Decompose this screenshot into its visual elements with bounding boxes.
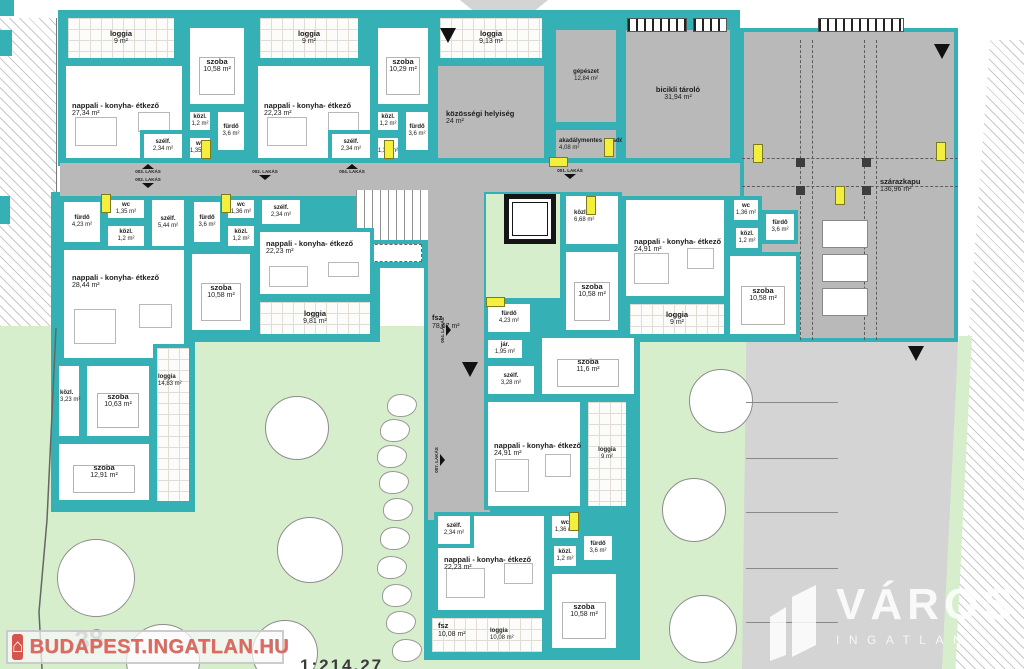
room-area: 10,58 m² xyxy=(570,611,598,619)
apartment-label: 003. LAKÁS xyxy=(126,169,170,175)
down-arrow-icon xyxy=(462,362,478,377)
watermark-text: BUDAPEST.INGATLAN.HU xyxy=(29,636,289,659)
floor-plan-canvas: loggia9 m²nappali - konyha- étkező27,34 … xyxy=(0,0,1024,669)
room-gepeszet: gépészet12,84 m² xyxy=(552,26,620,126)
down-arrow-icon xyxy=(908,346,924,361)
tree xyxy=(662,478,726,542)
room-name: közösségi helyiség xyxy=(446,110,514,118)
room-kozl: közl.1,2 m² xyxy=(550,542,580,570)
room-kozl: közl.1,2 m² xyxy=(186,108,214,134)
label-name: fsz xyxy=(438,622,466,631)
room-area: 1,36 m² xyxy=(231,209,251,216)
room-area: 12,84 m² xyxy=(573,76,599,83)
door-marker xyxy=(569,512,579,531)
room-area: 2,34 m² xyxy=(271,212,291,219)
tree xyxy=(57,539,135,617)
room-name: szoba xyxy=(570,603,598,611)
watermark-varos-ingatlan: VÁROS INGATLAN xyxy=(770,583,1017,661)
door-marker xyxy=(835,186,845,205)
label-area: 78,67 m² xyxy=(432,323,460,331)
room-area: 9 m² xyxy=(598,454,616,461)
room-name: közl. xyxy=(60,390,80,397)
door-marker xyxy=(549,157,568,167)
room-szelf: szélf.3,28 m² xyxy=(484,362,538,398)
room-furdo: fürdő4,23 m² xyxy=(60,198,104,246)
room-area: 9 m² xyxy=(298,38,320,46)
room-jar: jár.1,95 m² xyxy=(484,336,526,362)
room-loggia: loggia9 m² xyxy=(64,14,178,62)
door-marker xyxy=(936,142,946,161)
room-name: szélf. xyxy=(444,523,464,530)
room-name: szoba xyxy=(578,283,606,291)
down-arrow-icon xyxy=(142,183,154,188)
room-szelf: szélf.5,44 m² xyxy=(148,196,188,250)
room-name: szélf. xyxy=(501,373,521,380)
room-kozl: közl.1,2 m² xyxy=(224,222,258,250)
room-szoba: szoba10,58 m² xyxy=(188,250,254,334)
room-area: 1,2 m² xyxy=(232,236,249,243)
parking-divider-line xyxy=(746,512,838,513)
parking-stall xyxy=(822,254,868,282)
room-area: 10,58 m² xyxy=(207,292,235,300)
room-area: 24,91 m² xyxy=(494,450,581,458)
down-arrow-icon xyxy=(440,454,445,466)
column-marker xyxy=(862,158,871,167)
room-name: szoba xyxy=(207,284,235,292)
room-area: 10,58 m² xyxy=(203,66,231,74)
room-area: 4,23 m² xyxy=(72,222,92,229)
room-szoba: szoba10,58 m² xyxy=(726,252,800,338)
room-area: 1,35 m² xyxy=(116,209,136,216)
room-area: 9,81 m² xyxy=(303,318,327,326)
floor-area-label: fsz10,08 m² xyxy=(438,622,466,639)
room-bicikli-tarolo: bicikli tároló31,94 m² xyxy=(622,26,734,162)
wall-fragment xyxy=(0,0,14,16)
room-szoba: szoba10,58 m² xyxy=(562,248,622,334)
room-name: loggia xyxy=(490,628,514,635)
door-marker xyxy=(384,140,394,159)
label-area: 10,08 m² xyxy=(438,631,466,639)
room-area: 2,34 m² xyxy=(153,146,173,153)
room-area: 9 m² xyxy=(666,319,688,327)
room-area: 24,91 m² xyxy=(634,246,721,254)
room-furdo: fürdő3,6 m² xyxy=(190,198,224,246)
room-area: 22,23 m² xyxy=(444,564,531,572)
room-furdo: fürdő3,6 m² xyxy=(214,108,248,154)
room-szoba: szoba10,29 m² xyxy=(374,24,432,108)
room-area: 10,58 m² xyxy=(749,295,777,303)
room-name: szoba xyxy=(389,58,417,66)
room-szelf: szélf.2,34 m² xyxy=(258,196,304,228)
room-area: 1,2 m² xyxy=(117,236,134,243)
parking-stall xyxy=(822,220,868,248)
room-area: 3,6 m² xyxy=(222,131,239,138)
room-loggia: loggia9 m² xyxy=(256,14,362,62)
room-area: 2,34 m² xyxy=(341,146,361,153)
room-name: szoba xyxy=(749,287,777,295)
room-name: gépészet xyxy=(573,69,599,76)
room-area: 27,34 m² xyxy=(72,110,159,118)
room-name: közl. xyxy=(379,114,396,121)
room-name: nappali - konyha- étkező xyxy=(634,238,721,246)
room-name: wc xyxy=(231,202,251,209)
down-arrow-icon xyxy=(259,175,271,180)
room-name: szélf. xyxy=(271,205,291,212)
room-area: 136,96 m² xyxy=(880,186,920,194)
tree xyxy=(669,595,737,663)
door-marker xyxy=(486,297,505,307)
watermark-subtitle: INGATLAN xyxy=(836,633,1017,647)
room-loggia: loggia14,83 m² xyxy=(153,344,193,505)
apartment-entrance-marker: 001. LAKÁS xyxy=(548,168,592,179)
elevator-shaft xyxy=(504,194,556,244)
room-area: 1,2 m² xyxy=(379,121,396,128)
room-area: 22,23 m² xyxy=(264,110,351,118)
room-szoba: szoba12,91 m² xyxy=(55,440,153,504)
room-furdo: fürdő3,6 m² xyxy=(580,532,616,564)
watermark-budapest-ingatlan: ⌂ BUDAPEST.INGATLAN.HU xyxy=(6,630,284,664)
room-area: 1,2 m² xyxy=(191,121,208,128)
room-area: 3,23 m² xyxy=(60,397,80,404)
room-kozossegi-helyiseg: közösségi helyiség24 m² xyxy=(434,62,548,162)
room-area: 3,6 m² xyxy=(408,131,425,138)
driveway-dashed-line xyxy=(812,40,813,340)
room-area: 3,6 m² xyxy=(589,548,606,555)
room-szoba: szoba11,6 m² xyxy=(538,334,638,398)
room-name: loggia xyxy=(598,447,616,454)
wall-fragment xyxy=(0,196,10,224)
door-marker xyxy=(753,144,763,163)
room-name: loggia xyxy=(110,30,132,38)
varos-logo-icon xyxy=(770,583,822,661)
scale-text-fragment: 1:214.27 xyxy=(300,656,383,669)
parking-stall xyxy=(822,288,868,316)
apartment-entrance-marker: 002. LAKÁS xyxy=(126,177,170,188)
room-szoba: szoba10,58 m² xyxy=(186,24,248,108)
apartment-entrance-marker: 004. LAKÁS xyxy=(330,164,374,175)
room-area: 1,95 m² xyxy=(495,349,515,356)
room-area: 3,6 m² xyxy=(198,222,215,229)
room-kozl: közl.1,2 m² xyxy=(374,108,402,134)
apartment-entrance-marker: 002. LAKÁS xyxy=(243,169,287,180)
room-name: nappali - konyha- étkező xyxy=(72,274,159,282)
down-arrow-icon xyxy=(564,174,576,179)
room-name: loggia xyxy=(298,30,320,38)
apartment-entrance-marker: 003. LAKÁS xyxy=(126,164,170,175)
room-name: közl. xyxy=(117,229,134,236)
room-name: bicikli tároló xyxy=(656,86,700,94)
label-name: fsz xyxy=(432,314,460,323)
room-name: nappali - konyha- étkező xyxy=(444,556,531,564)
room-name: nappali - konyha- étkező xyxy=(266,240,353,248)
adjacent-building-hatch-left xyxy=(0,18,57,326)
room-kozl: közl.1,2 m² xyxy=(732,224,762,252)
room-nappali-konyha-etkezo: nappali - konyha- étkező24,91 m² xyxy=(622,196,728,300)
room-area: 5,44 m² xyxy=(158,223,178,230)
room-area: 14,83 m² xyxy=(158,381,182,388)
room-name: fürdő xyxy=(589,541,606,548)
room-name: nappali - konyha- étkező xyxy=(72,102,159,110)
room-area: 10,08 m² xyxy=(490,635,514,642)
column-marker xyxy=(796,158,805,167)
column-marker xyxy=(796,186,805,195)
door-marker xyxy=(586,196,596,215)
down-arrow-icon xyxy=(440,28,456,43)
watermark-title: VÁROS xyxy=(836,583,1017,627)
room-name: szoba xyxy=(104,393,132,401)
room-name: fürdő xyxy=(499,311,519,318)
column-marker xyxy=(862,186,871,195)
room-name: közl. xyxy=(738,231,755,238)
room-name: wc xyxy=(736,203,756,210)
apartment-label: 004. LAKÁS xyxy=(330,169,374,175)
apartment-label: 002. LAKÁS xyxy=(126,177,170,183)
apartment-entrance-marker: 007. LAKÁS xyxy=(434,438,445,482)
driveway-dashed-line xyxy=(742,186,958,187)
room-name: szélf. xyxy=(341,139,361,146)
room-name: jár. xyxy=(495,342,515,349)
parking-divider-line xyxy=(746,458,838,459)
tree xyxy=(277,517,343,583)
room-szoba: szoba10,58 m² xyxy=(548,570,620,652)
room-name: szélf. xyxy=(153,139,173,146)
gate-grille xyxy=(818,18,904,32)
room-name: fürdő xyxy=(408,124,425,131)
room-area: 1,36 m² xyxy=(736,210,756,217)
room-furdo: fürdő3,6 m² xyxy=(762,210,798,244)
door-marker xyxy=(101,194,111,213)
tree xyxy=(265,396,329,460)
parking-divider-line xyxy=(746,568,838,569)
room-szelf: szélf.2,34 m² xyxy=(434,512,474,548)
door-marker xyxy=(604,138,614,157)
room-name: szoba xyxy=(203,58,231,66)
room-area: 2,34 m² xyxy=(444,530,464,537)
room-szelf: szélf.2,34 m² xyxy=(328,130,374,162)
room-area: 31,94 m² xyxy=(656,94,700,102)
room-name: fürdő xyxy=(72,215,92,222)
down-arrow-icon xyxy=(934,44,950,59)
room-name: fürdő xyxy=(198,215,215,222)
room-area: 1,2 m² xyxy=(738,238,755,245)
room-name: loggia xyxy=(666,311,688,319)
driveway-dashed-line xyxy=(742,158,958,159)
room-area: 4,23 m² xyxy=(499,318,519,325)
room-area: 28,44 m² xyxy=(72,282,159,290)
room-name: loggia xyxy=(158,374,182,381)
door-marker xyxy=(221,194,231,213)
room-area: 9,13 m² xyxy=(479,38,503,46)
door-marker xyxy=(201,140,211,159)
parking-divider-line xyxy=(746,402,838,403)
room-area: 10,63 m² xyxy=(104,401,132,409)
room-loggia: loggia9 m² xyxy=(626,300,728,338)
room-area: 24 m² xyxy=(446,118,514,126)
apartment-label: 001. LAKÁS xyxy=(548,168,592,174)
room-area: 11,6 m² xyxy=(576,366,599,374)
room-furdo: fürdő3,6 m² xyxy=(402,108,432,154)
house-icon: ⌂ xyxy=(12,634,23,660)
room-name: loggia xyxy=(303,310,327,318)
room-name: fürdő xyxy=(222,124,239,131)
room-area: 3,6 m² xyxy=(771,227,788,234)
driveway-dashed-line xyxy=(876,40,877,340)
room-name: nappali - konyha- étkező xyxy=(494,442,581,450)
room-szoba: szoba10,63 m² xyxy=(83,362,153,440)
room-name: fürdő xyxy=(771,220,788,227)
room-nappali-konyha-etkezo: nappali - konyha- étkező24,91 m² xyxy=(484,398,584,510)
room-name: szoba xyxy=(576,358,599,366)
room-area: 1,2 m² xyxy=(556,556,573,563)
room-name: közl. xyxy=(556,549,573,556)
room-wc: wc1,36 m² xyxy=(730,196,762,224)
apartment-label: 002. LAKÁS xyxy=(243,169,287,175)
room-area: 10,58 m² xyxy=(578,291,606,299)
room-area: 10,29 m² xyxy=(389,66,417,74)
gate-grille xyxy=(627,18,687,32)
floor-area-label: fsz78,67 m² xyxy=(432,314,460,331)
room-name: loggia xyxy=(479,30,503,38)
room-area: 9 m² xyxy=(110,38,132,46)
room-name: közl. xyxy=(232,229,249,236)
room-name: szoba xyxy=(90,464,118,472)
room-area: 6,68 m² xyxy=(574,217,594,224)
tree xyxy=(689,369,753,433)
room-loggia: loggia9 m² xyxy=(584,398,630,510)
gate-grille xyxy=(693,18,727,32)
room-name: közl. xyxy=(191,114,208,121)
room-nappali-konyha-etkezo: nappali - konyha- étkező22,23 m² xyxy=(256,228,374,298)
room-area: 3,28 m² xyxy=(501,380,521,387)
room-area: 22,23 m² xyxy=(266,248,353,256)
room-name: nappali - konyha- étkező xyxy=(264,102,351,110)
apartment-label: 007. LAKÁS xyxy=(434,438,440,482)
room-kozl: közl.3,23 m² xyxy=(55,362,83,440)
room-area: 12,91 m² xyxy=(90,472,118,480)
room-szelf: szélf.2,34 m² xyxy=(140,130,186,162)
room-name: szélf. xyxy=(158,216,178,223)
room-loggia: loggia9,81 m² xyxy=(256,298,374,338)
room-name: wc xyxy=(116,202,136,209)
wall-fragment xyxy=(0,30,12,56)
